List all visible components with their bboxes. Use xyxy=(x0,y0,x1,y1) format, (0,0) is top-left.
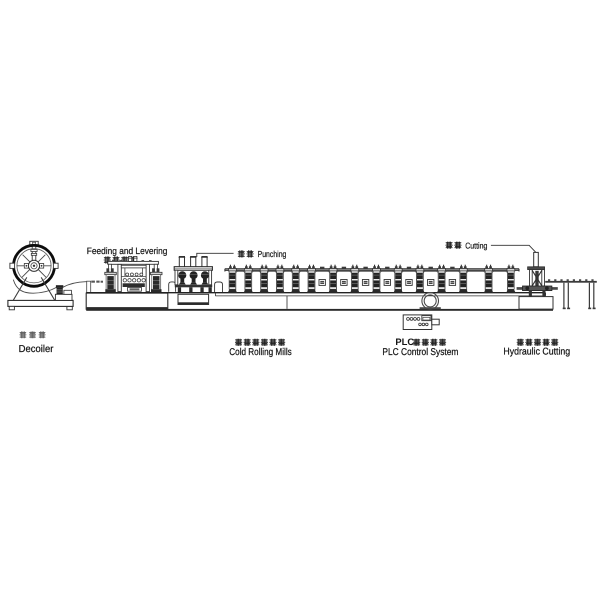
svg-text:Hydraulic Cutting: Hydraulic Cutting xyxy=(503,346,570,357)
svg-text:Punching: Punching xyxy=(258,249,287,259)
svg-text:PLC: PLC xyxy=(395,336,414,347)
svg-text:PLC Control System: PLC Control System xyxy=(382,347,458,358)
svg-text:Feeding and Levering: Feeding and Levering xyxy=(87,246,168,256)
svg-text:Decoiler: Decoiler xyxy=(19,344,54,355)
svg-text:Cold Rolling Mills: Cold Rolling Mills xyxy=(229,347,291,358)
svg-text:Cutting: Cutting xyxy=(465,240,487,250)
